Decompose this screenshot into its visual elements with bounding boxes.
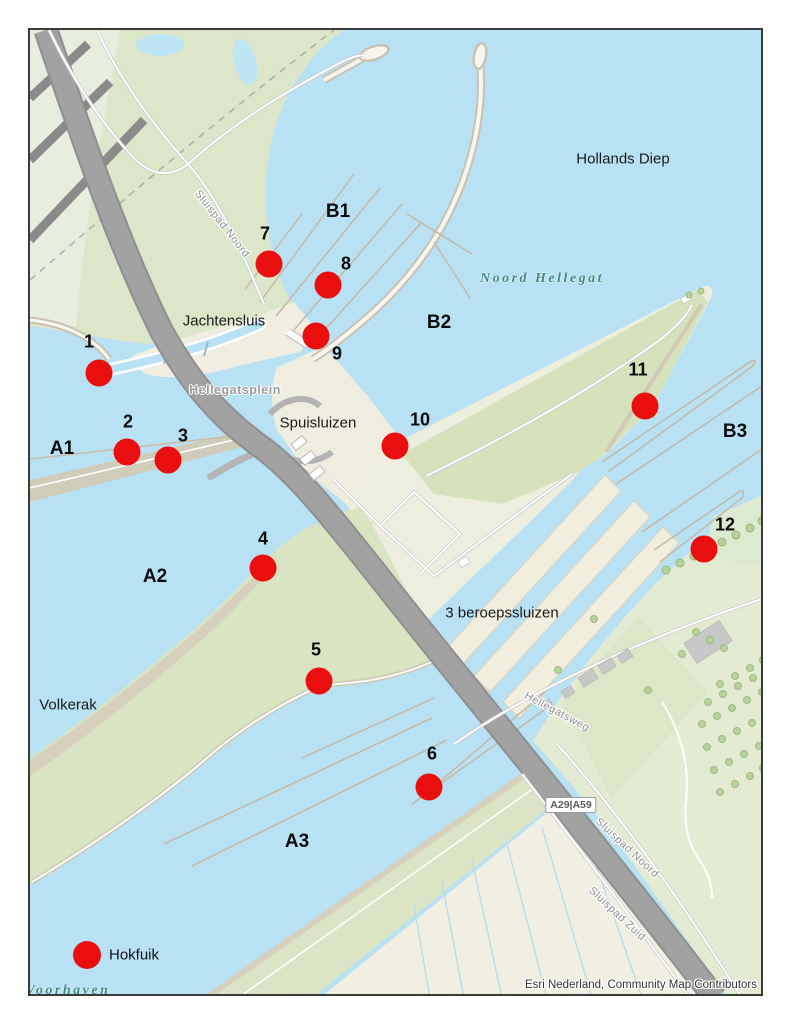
place-label: Hollands Diep xyxy=(576,151,669,168)
zone-label-b3: B3 xyxy=(723,421,747,443)
station-marker-8[interactable] xyxy=(315,272,342,299)
station-number-label: 6 xyxy=(427,744,437,765)
station-marker-11[interactable] xyxy=(632,393,659,420)
station-number-label: 4 xyxy=(258,529,268,550)
zone-label-a2: A2 xyxy=(143,566,167,588)
zone-label-a3: A3 xyxy=(285,831,309,853)
map-canvas: 123456789101112A1A2A3B1B2B3Hollands Diep… xyxy=(0,0,791,1024)
zone-label-a1: A1 xyxy=(50,438,74,460)
road-label: Hellegatsweg xyxy=(522,690,591,734)
station-marker-7[interactable] xyxy=(256,251,283,278)
road-label: Sluispad Zuid xyxy=(586,885,648,944)
station-marker-12[interactable] xyxy=(691,536,718,563)
place-label: Spuisluizen xyxy=(280,415,357,432)
map-overlay: 123456789101112A1A2A3B1B2B3Hollands Diep… xyxy=(30,30,761,994)
station-marker-3[interactable] xyxy=(155,447,182,474)
station-number-label: 9 xyxy=(332,344,342,365)
station-marker-9[interactable] xyxy=(303,323,330,350)
road-label: Sluispad Noord xyxy=(192,188,252,260)
station-marker-5[interactable] xyxy=(306,668,333,695)
station-number-label: 1 xyxy=(84,332,94,353)
place-label: 3 beroepssluizen xyxy=(445,605,558,622)
station-marker-6[interactable] xyxy=(416,774,443,801)
station-number-label: 8 xyxy=(341,254,351,275)
station-marker-10[interactable] xyxy=(382,433,409,460)
road-label: Sluispad Noord xyxy=(593,816,661,881)
station-marker-4[interactable] xyxy=(250,555,277,582)
station-number-label: 7 xyxy=(260,224,270,245)
station-marker-2[interactable] xyxy=(114,439,141,466)
station-marker-1[interactable] xyxy=(86,360,113,387)
zone-label-b2: B2 xyxy=(427,312,451,334)
station-number-label: 10 xyxy=(410,410,430,431)
road-shield-a29-a59: A29|A59 xyxy=(545,797,596,813)
place-label: Hellegatsplein xyxy=(189,383,281,397)
station-number-label: 5 xyxy=(311,640,321,661)
attribution-text: Esri Nederland, Community Map Contributo… xyxy=(525,979,757,991)
station-number-label: 2 xyxy=(123,412,133,433)
place-label: Volkerak xyxy=(39,697,97,714)
legend-label: Hokfuik xyxy=(109,947,159,964)
water-name-label: Voorhaven xyxy=(28,983,110,996)
map-frame[interactable]: 123456789101112A1A2A3B1B2B3Hollands Diep… xyxy=(28,28,763,996)
station-number-label: 3 xyxy=(178,426,188,447)
zone-label-b1: B1 xyxy=(326,201,350,223)
legend-symbol-red-dot xyxy=(73,941,101,969)
station-number-label: 12 xyxy=(715,515,735,536)
station-number-label: 11 xyxy=(628,360,647,381)
place-label: Jachtensluis xyxy=(183,313,266,330)
water-name-label: Noord Hellegat xyxy=(480,271,604,287)
